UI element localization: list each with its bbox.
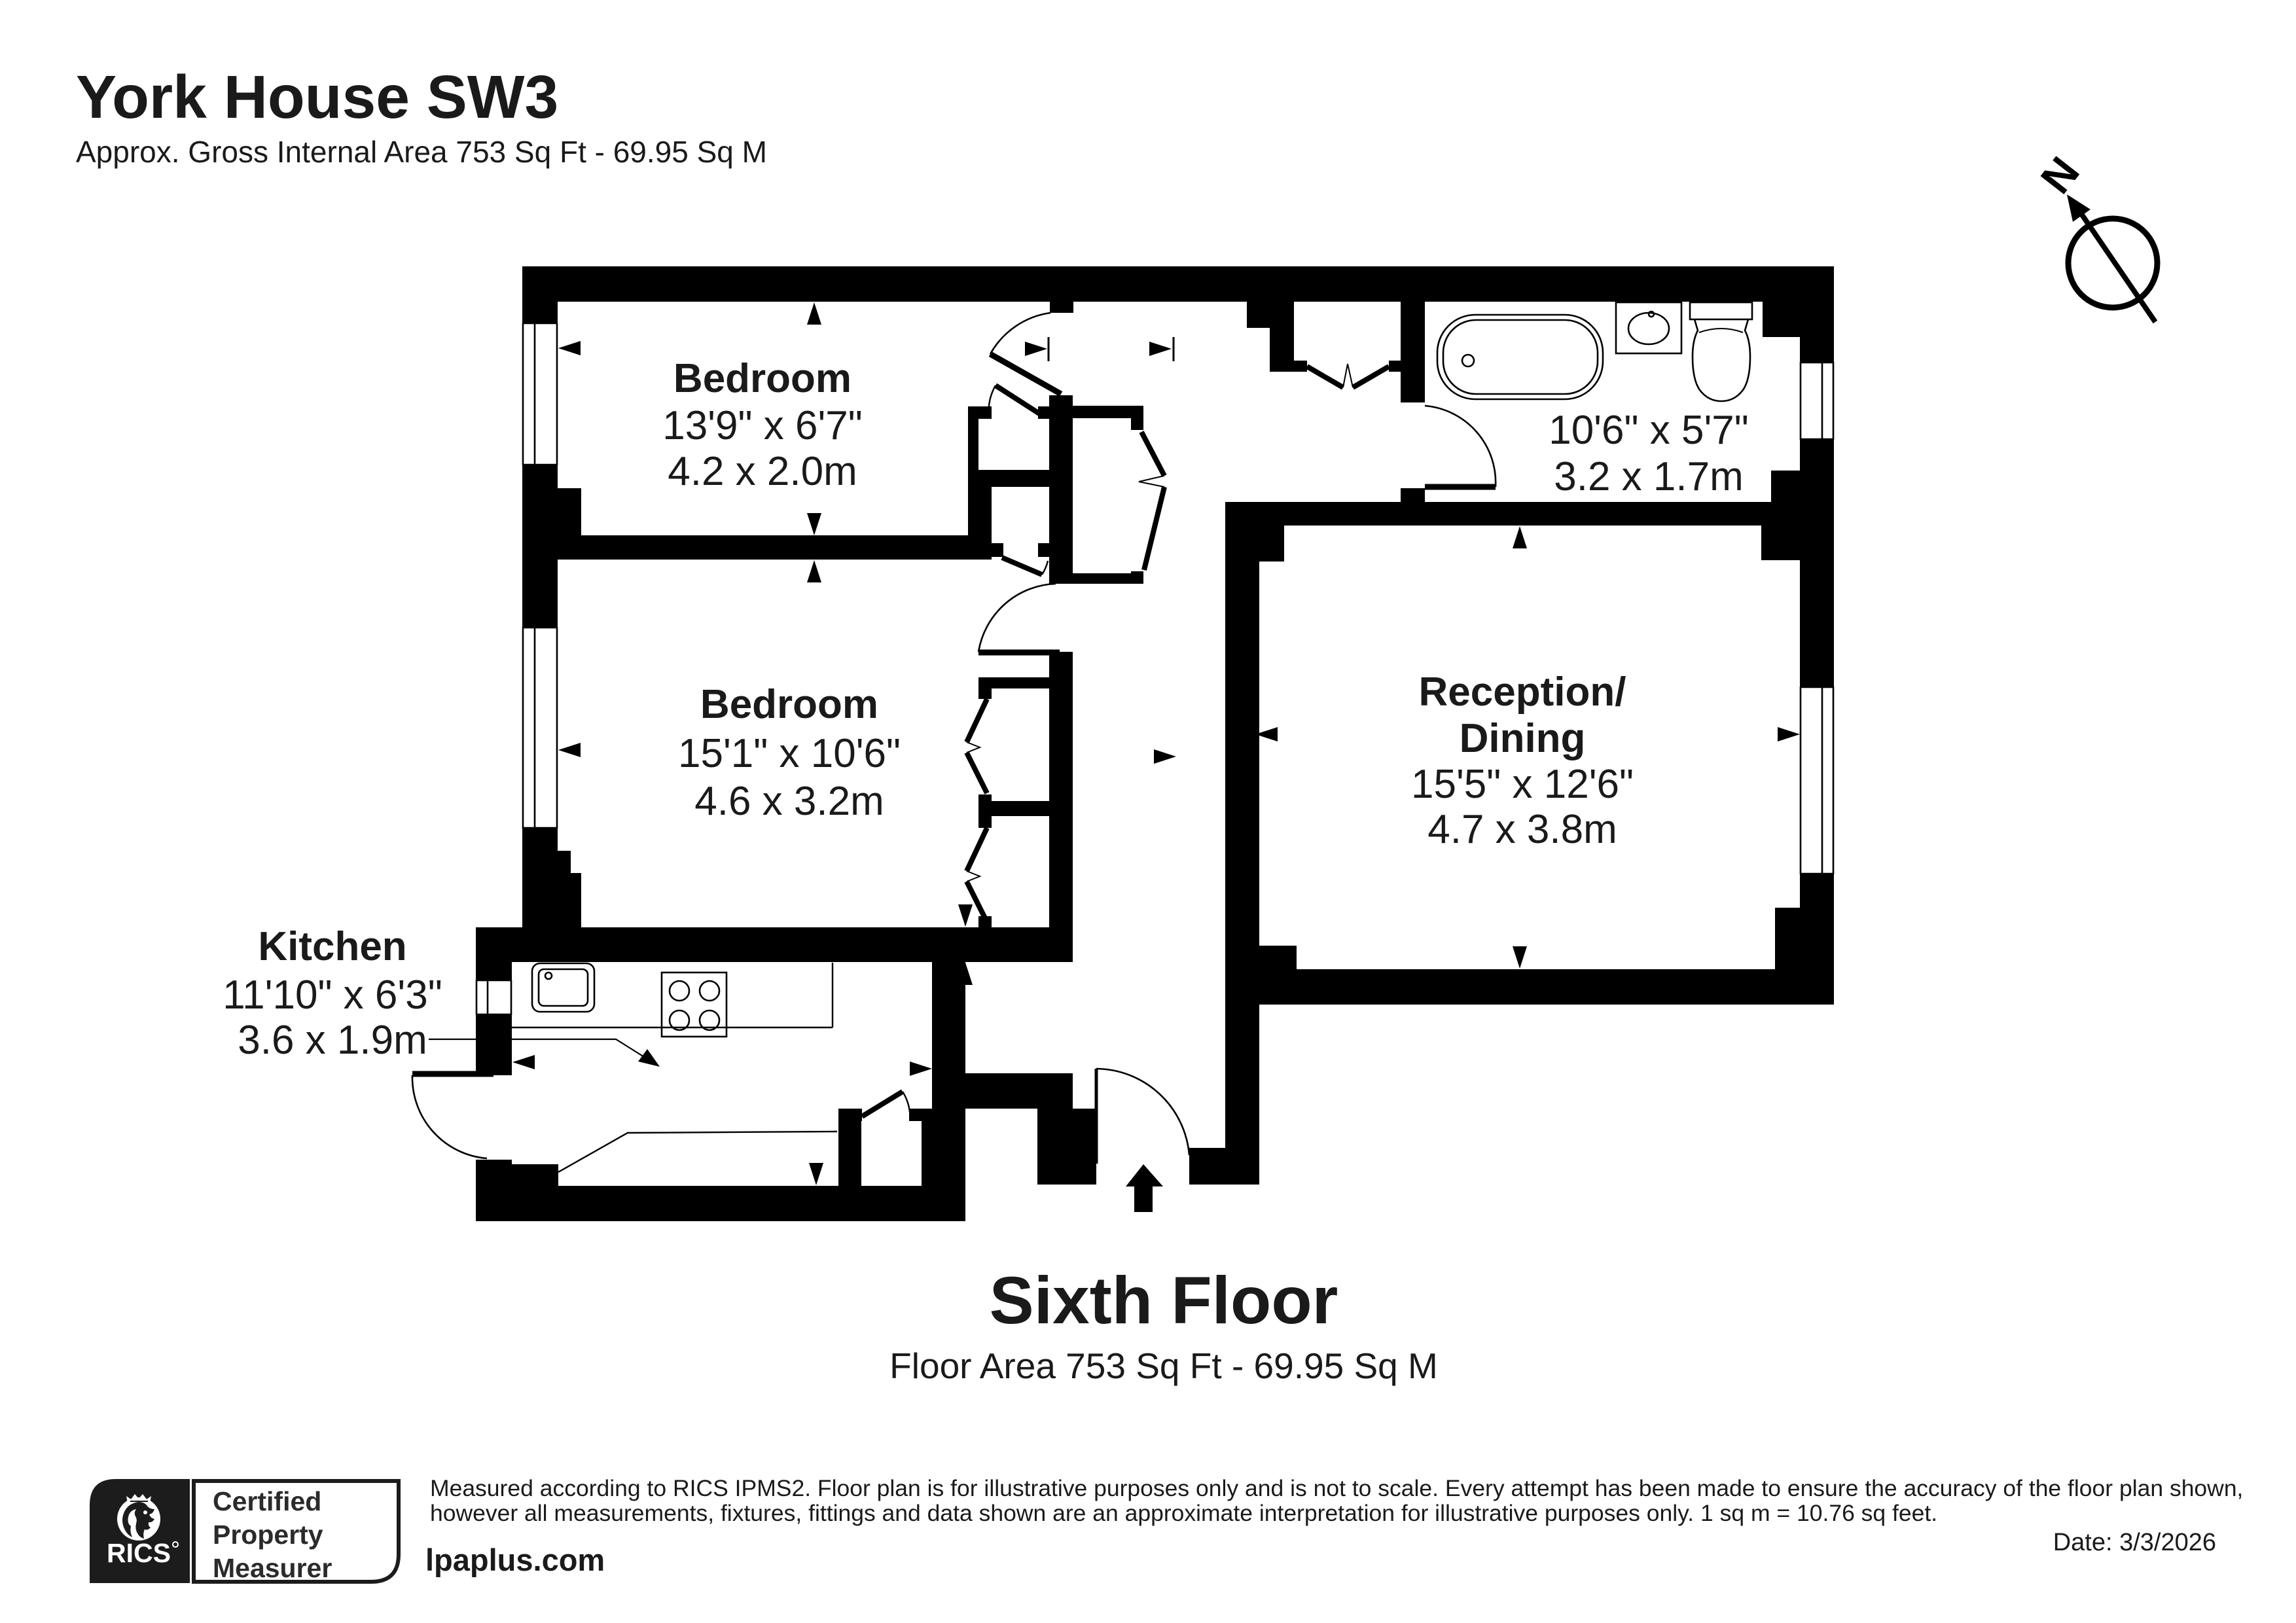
- svg-text:RICS: RICS: [107, 1538, 171, 1568]
- svg-text:15'5" x 12'6": 15'5" x 12'6": [1411, 762, 1634, 807]
- svg-text:3.6 x 1.9m: 3.6 x 1.9m: [238, 1018, 427, 1063]
- svg-text:4.7 x 3.8m: 4.7 x 3.8m: [1427, 807, 1617, 852]
- svg-text:Approx. Gross Internal Area 75: Approx. Gross Internal Area 753 Sq Ft - …: [76, 135, 767, 169]
- svg-text:Property: Property: [213, 1520, 323, 1550]
- svg-text:Measurer: Measurer: [213, 1553, 332, 1583]
- svg-text:13'9" x 6'7": 13'9" x 6'7": [662, 403, 863, 448]
- svg-text:Bedroom: Bedroom: [673, 356, 852, 401]
- svg-text:Sixth Floor: Sixth Floor: [990, 1263, 1338, 1338]
- svg-text:11'10" x 6'3": 11'10" x 6'3": [223, 972, 442, 1018]
- svg-text:Certified: Certified: [213, 1486, 321, 1516]
- svg-text:Date: 3/3/2026: Date: 3/3/2026: [2053, 1529, 2216, 1556]
- svg-text:Dining: Dining: [1460, 716, 1586, 761]
- svg-text:4.2 x 2.0m: 4.2 x 2.0m: [668, 449, 857, 494]
- svg-text:10'6" x 5'7": 10'6" x 5'7": [1549, 408, 1749, 453]
- svg-text:York House SW3: York House SW3: [76, 63, 558, 131]
- svg-text:however all measurements, fixt: however all measurements, fixtures, fitt…: [430, 1500, 1937, 1526]
- svg-text:Kitchen: Kitchen: [258, 924, 406, 969]
- svg-text:Reception/: Reception/: [1419, 669, 1626, 715]
- svg-text:lpaplus.com: lpaplus.com: [425, 1543, 605, 1577]
- svg-text:15'1" x 10'6": 15'1" x 10'6": [678, 731, 901, 776]
- svg-text:4.6 x 3.2m: 4.6 x 3.2m: [694, 779, 884, 824]
- svg-text:3.2 x 1.7m: 3.2 x 1.7m: [1554, 454, 1743, 499]
- svg-text:Floor Area 753 Sq Ft - 69.95 S: Floor Area 753 Sq Ft - 69.95 Sq M: [889, 1346, 1438, 1386]
- svg-text:Measured according to RICS IPM: Measured according to RICS IPMS2. Floor …: [430, 1475, 2243, 1501]
- svg-text:Bedroom: Bedroom: [700, 682, 878, 727]
